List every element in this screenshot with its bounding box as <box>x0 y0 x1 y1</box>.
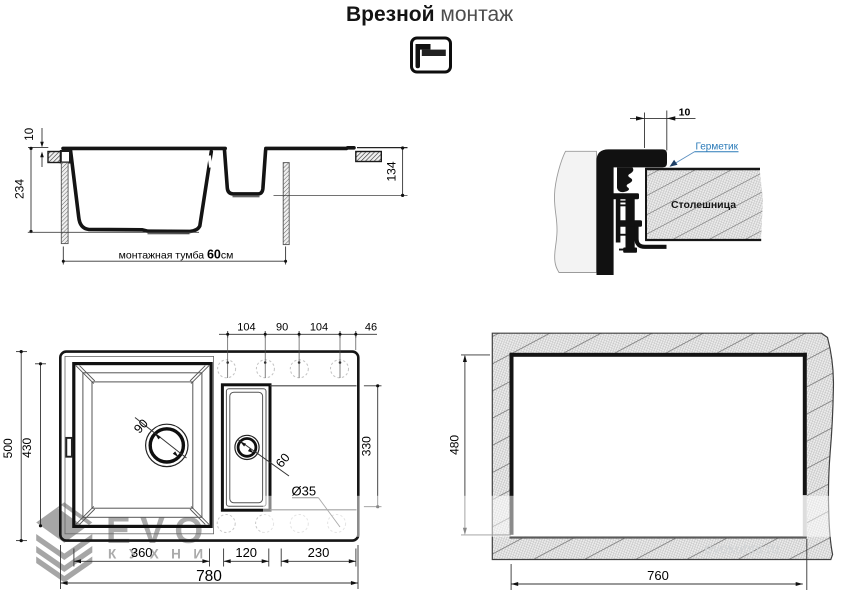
svg-text:500: 500 <box>1 438 15 458</box>
svg-text:монтажная тумба 60см: монтажная тумба 60см <box>119 247 234 261</box>
svg-text:Герметик: Герметик <box>696 142 739 153</box>
svg-text:430: 430 <box>20 437 34 457</box>
svg-text:104: 104 <box>310 322 328 334</box>
svg-text:134: 134 <box>384 161 398 181</box>
svg-text:480: 480 <box>447 435 461 455</box>
svg-text:Столешница: Столешница <box>671 199 736 211</box>
svg-text:Врезной монтаж: Врезной монтаж <box>346 3 513 26</box>
svg-text:10: 10 <box>679 107 691 119</box>
svg-text:КУХНИ: КУХНИ <box>108 547 215 562</box>
svg-text:90: 90 <box>276 322 288 334</box>
svg-text:760: 760 <box>647 568 669 583</box>
svg-text:evokuhni.ru: evokuhni.ru <box>705 542 780 558</box>
svg-text:780: 780 <box>196 568 222 585</box>
svg-text:230: 230 <box>308 545 330 560</box>
svg-text:10: 10 <box>24 128 36 141</box>
svg-text:234: 234 <box>13 179 27 199</box>
svg-text:360: 360 <box>131 545 153 560</box>
svg-text:330: 330 <box>360 436 374 456</box>
svg-text:104: 104 <box>237 322 255 334</box>
svg-text:46: 46 <box>365 322 377 334</box>
svg-text:120: 120 <box>235 545 257 560</box>
